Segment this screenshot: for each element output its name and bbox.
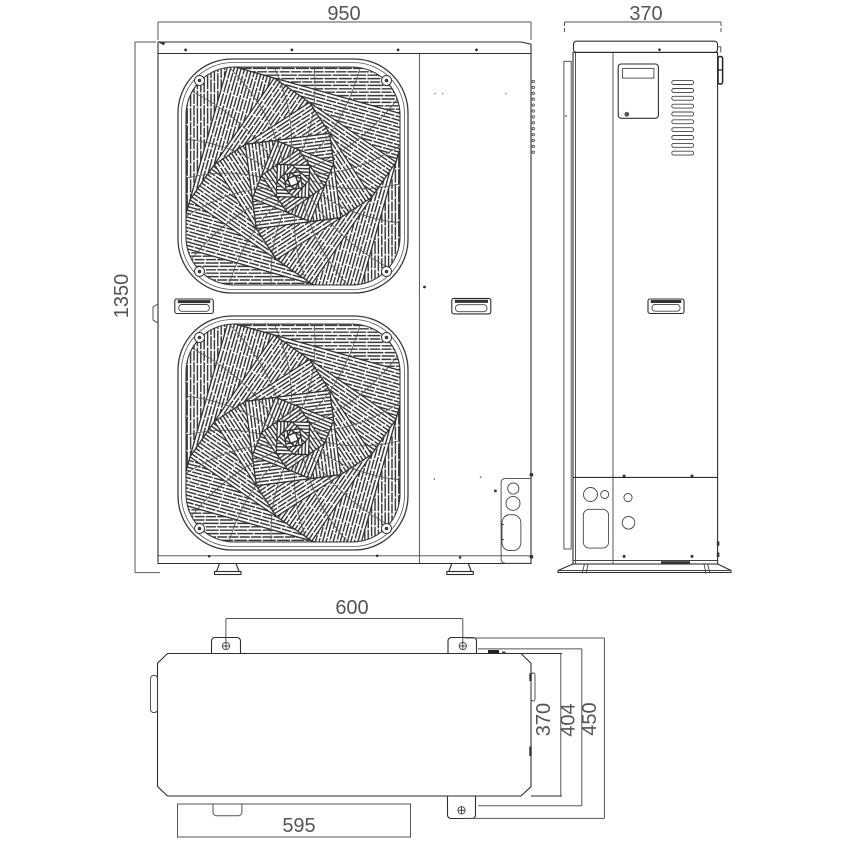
svg-text:950: 950 (327, 3, 360, 25)
svg-text:1350: 1350 (111, 274, 133, 319)
svg-text:595: 595 (282, 815, 315, 837)
svg-text:450: 450 (579, 702, 601, 735)
svg-text:370: 370 (629, 3, 662, 25)
svg-text:370: 370 (533, 703, 555, 736)
svg-text:600: 600 (335, 597, 368, 619)
svg-text:404: 404 (558, 703, 580, 736)
